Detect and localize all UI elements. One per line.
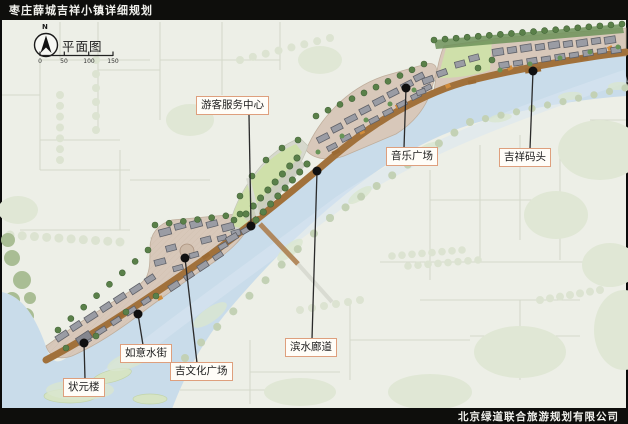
compass-north-label: N bbox=[42, 23, 48, 31]
sandbar bbox=[133, 394, 167, 404]
company-name: 北京绿道联合旅游规划有限公司 bbox=[458, 409, 619, 424]
scale-tick-50: 50 bbox=[56, 58, 72, 65]
label-jixiang-wharf: 吉祥码头 bbox=[499, 148, 551, 167]
label-zhuangyuan-tower: 状元楼 bbox=[63, 378, 105, 397]
planning-drawing: 枣庄薛城吉祥小镇详细规划 bbox=[0, 0, 628, 424]
label-ji-culture-plaza: 吉文化广场 bbox=[170, 362, 233, 381]
drawing-title: 枣庄薛城吉祥小镇详细规划 bbox=[9, 2, 153, 18]
label-waterfront-corridor: 滨水廊道 bbox=[285, 338, 337, 357]
title-bar: 枣庄薛城吉祥小镇详细规划 bbox=[0, 0, 628, 20]
scale-tick-150: 150 bbox=[105, 58, 121, 65]
plan-view-label: 平面图 bbox=[62, 36, 103, 55]
label-ruyi-water-street: 如意水街 bbox=[120, 344, 172, 363]
scale-tick-0: 0 bbox=[32, 58, 48, 65]
footer-bar: 北京绿道联合旅游规划有限公司 bbox=[0, 408, 628, 424]
label-music-plaza: 音乐广场 bbox=[386, 147, 438, 166]
scale-tick-100: 100 bbox=[81, 58, 97, 65]
label-visitor-center: 游客服务中心 bbox=[196, 96, 269, 115]
compass-icon bbox=[35, 34, 58, 57]
